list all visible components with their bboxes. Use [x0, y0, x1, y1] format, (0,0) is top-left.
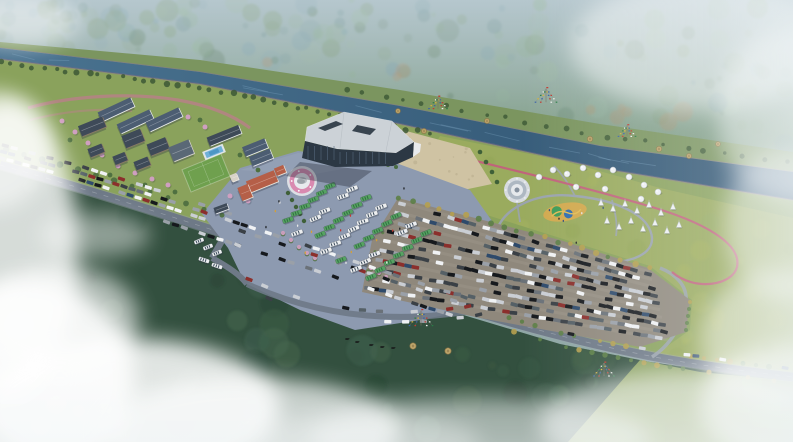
stage [0, 0, 793, 442]
aerial-rendering [0, 0, 793, 442]
